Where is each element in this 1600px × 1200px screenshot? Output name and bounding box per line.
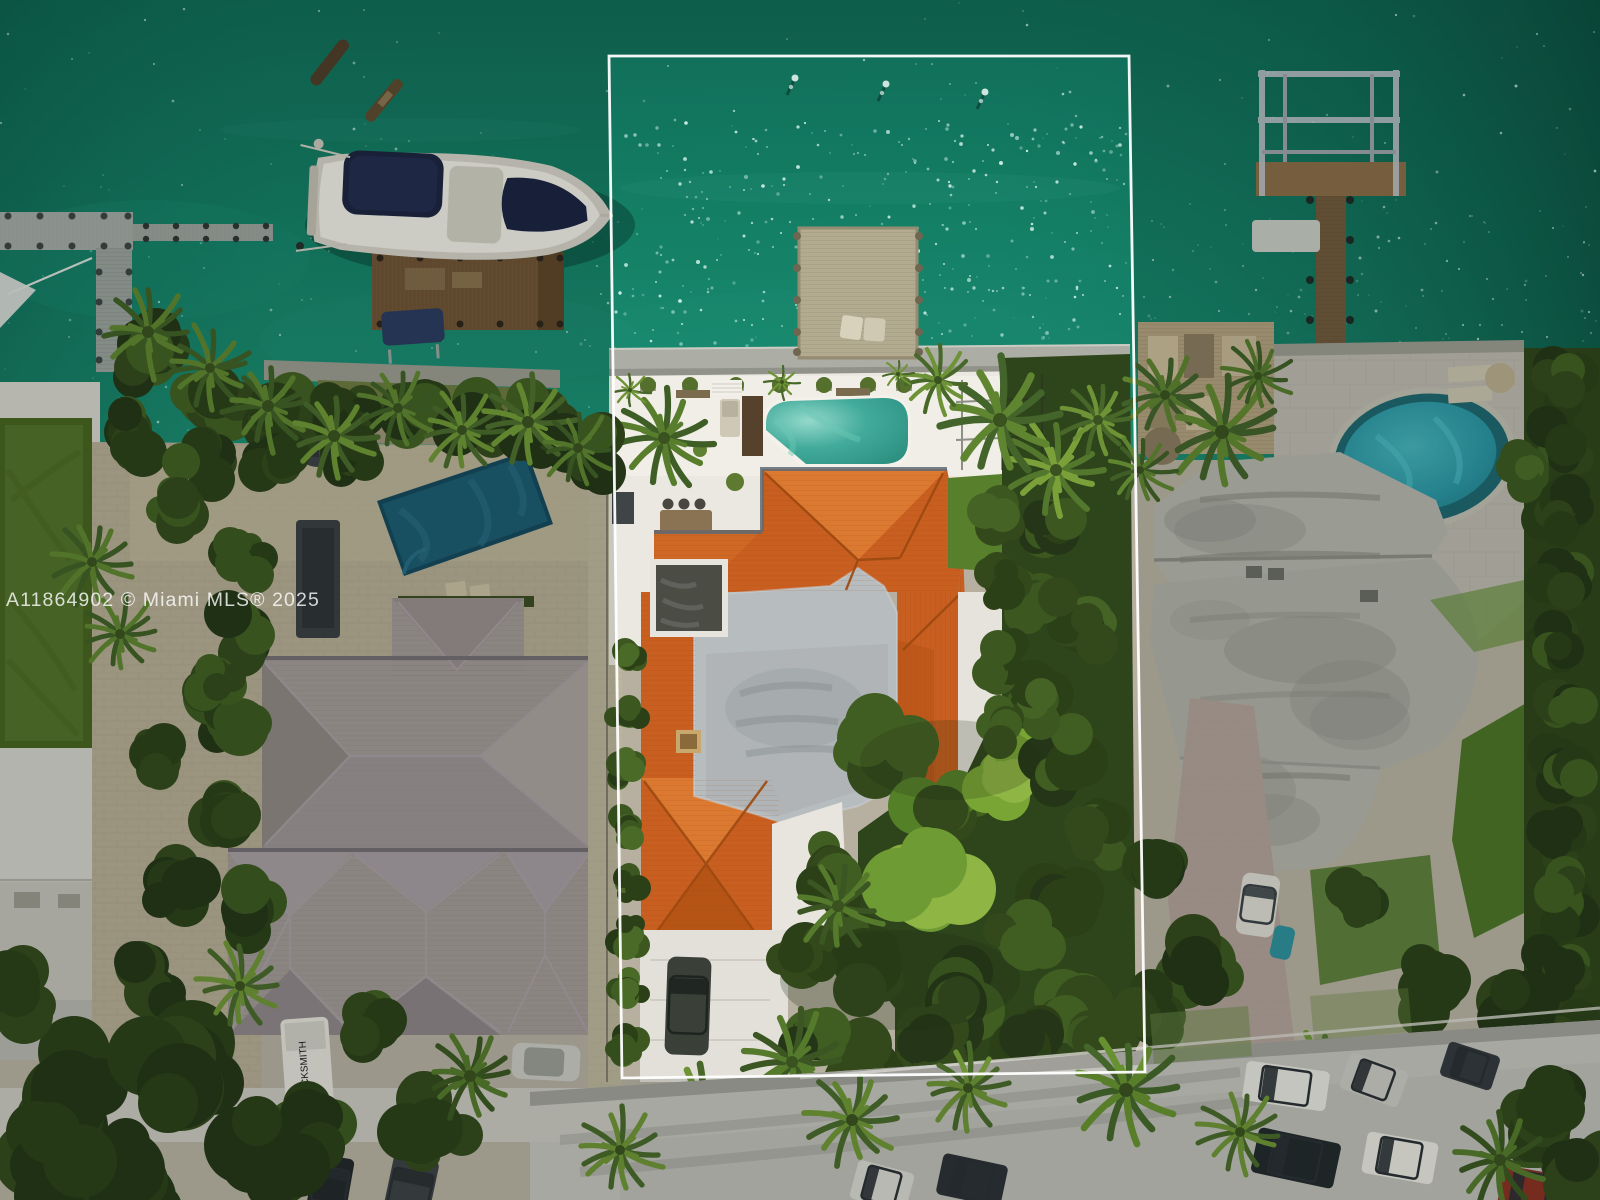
svg-text:A11864902 © Miami MLS® 2025: A11864902 © Miami MLS® 2025 xyxy=(6,589,320,611)
